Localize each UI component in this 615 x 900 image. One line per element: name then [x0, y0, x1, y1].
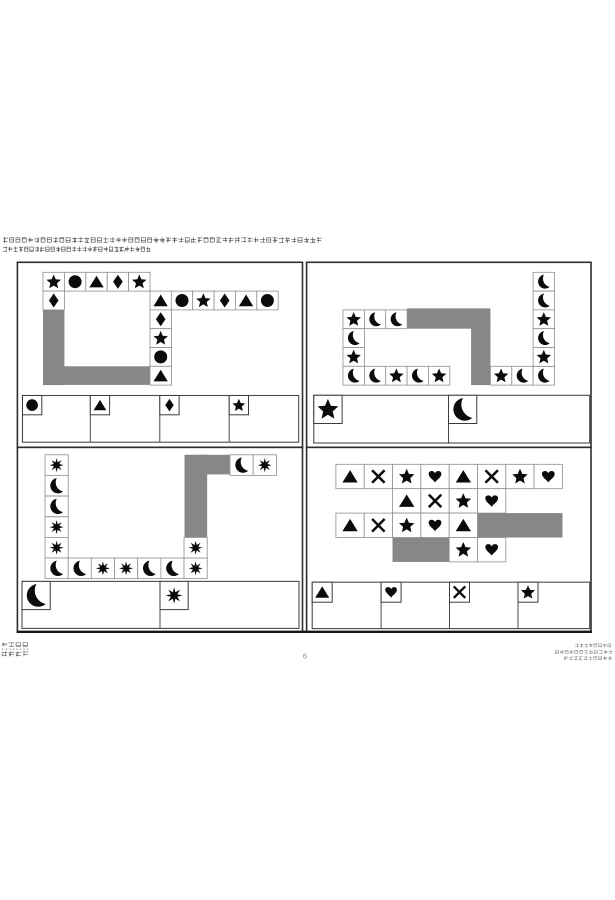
svg-text:6: 6 [303, 652, 307, 661]
